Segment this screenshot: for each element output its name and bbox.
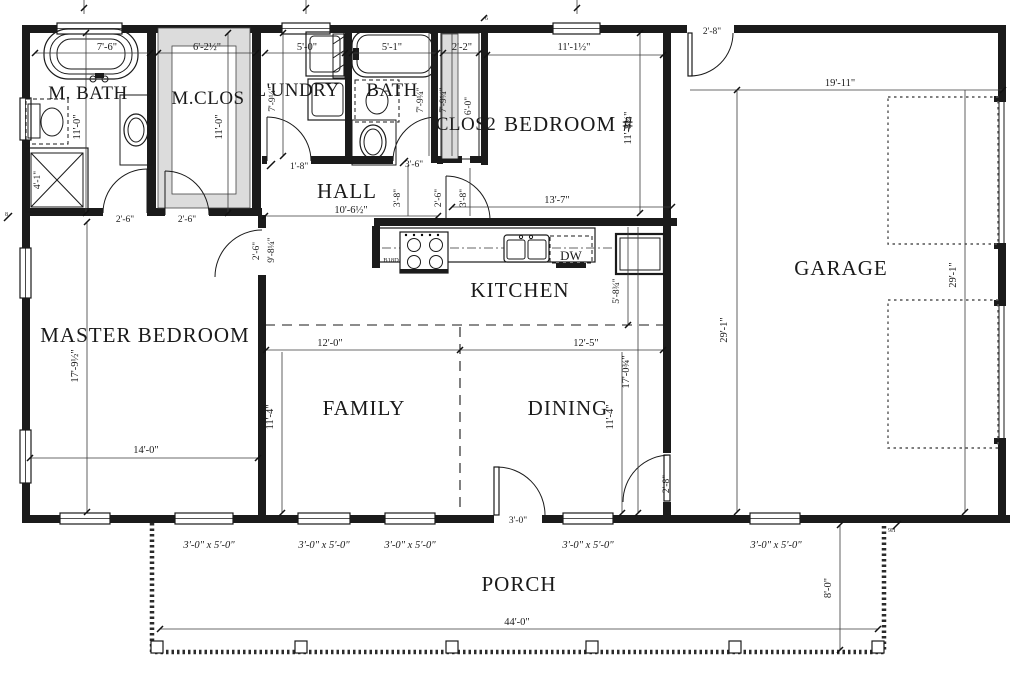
room-label-family: FAMILY bbox=[323, 396, 406, 420]
dim-clos2-length: 6'-0" bbox=[464, 97, 474, 115]
mark-bottom: 9H bbox=[888, 528, 896, 534]
dim-mbath-depth: 11'-0" bbox=[72, 114, 83, 139]
dim-family-depth: 11'-4" bbox=[265, 404, 276, 429]
dim-bath-tub: 5'-1" bbox=[382, 42, 402, 53]
mark-left: 8 bbox=[5, 212, 8, 218]
tub-icon bbox=[352, 31, 437, 77]
dim-kitchen-depth: 5'-8¾" bbox=[612, 278, 622, 304]
dim-hall-3-8-a: 3'-8" bbox=[393, 189, 403, 207]
master-bath-fixtures bbox=[26, 29, 152, 212]
dim-bedroom-depth: 11'-8¾" bbox=[623, 112, 634, 145]
cabinet-label: B18D bbox=[383, 257, 399, 264]
room-label-bedroom: BEDROOM # bbox=[504, 112, 634, 136]
dim-master-entry: 9'-8¼" bbox=[267, 237, 277, 263]
tub-icon bbox=[44, 29, 138, 79]
room-label-kitchen: KITCHEN bbox=[470, 278, 569, 302]
dim-shower: 4'-1" bbox=[33, 171, 43, 189]
room-label-clos2: CLOS2 bbox=[436, 114, 497, 135]
dim-porch-width: 44'-0" bbox=[504, 617, 529, 628]
dim-master-depth: 17'-9½" bbox=[70, 349, 81, 382]
dim-mbath-door: 2'-6" bbox=[116, 215, 134, 225]
dim-garage-depth-left: 29'-1" bbox=[719, 317, 730, 342]
dim-hall-width: 10'-6½" bbox=[334, 205, 367, 216]
window-labels: 3'-0" x 5'-0" 3'-0" x 5'-0" 3'-0" x 5'-0… bbox=[182, 540, 802, 551]
dim-clos2-width: 2'-2" bbox=[452, 42, 472, 53]
dim-dining-depth: 11'-4" bbox=[605, 404, 616, 429]
room-label-m-bath: M. BATH bbox=[48, 83, 128, 104]
dim-kitchen-top: 13'-7" bbox=[544, 195, 569, 206]
room-label-porch: PORCH bbox=[481, 572, 556, 596]
room-label-m-clos: M.CLOS bbox=[171, 88, 244, 109]
dim-hall-jog: 1'-8" bbox=[290, 162, 308, 172]
room-label-dining: DINING bbox=[528, 396, 609, 420]
dim-dining-full-depth: 17'-0¾" bbox=[621, 355, 632, 388]
dim-bedroom-width: 11'-1½" bbox=[558, 42, 591, 53]
dim-garage-entry-door: 2'-8" bbox=[703, 27, 721, 37]
dim-hall-2-6: 2'-6" bbox=[434, 189, 444, 207]
dim-dining-width: 12'-5" bbox=[573, 338, 598, 349]
dim-garage-width: 19'-11" bbox=[825, 78, 855, 89]
room-label-hall: HALL bbox=[317, 179, 377, 203]
dim-laundry-depth: 7'-9¼" bbox=[268, 86, 278, 112]
dim-mclos-door: 2'-6" bbox=[178, 215, 196, 225]
dim-tub: 7'-6" bbox=[97, 42, 117, 53]
dim-master-door: 2'-6" bbox=[252, 242, 262, 260]
room-label-master: MASTER BEDROOM bbox=[40, 323, 249, 347]
dim-clos2-depth: 7'-9¼" bbox=[439, 87, 449, 113]
dim-porch-depth: 8'-0" bbox=[823, 578, 834, 598]
window-size-label-4: 3'-0" x 5'-0" bbox=[561, 540, 614, 551]
window-size-label-1: 3'-0" x 5'-0" bbox=[182, 540, 235, 551]
floor-plan-page: M. BATH M.CLOS L'UNDRY BATH CLOS2 BEDROO… bbox=[0, 0, 1031, 673]
window-size-label-5: 3'-0" x 5'-0" bbox=[749, 540, 802, 551]
dim-bath-depth: 7'-9¼" bbox=[416, 87, 426, 113]
dim-garage-depth-right: 29'-1" bbox=[948, 262, 959, 287]
garage-doors bbox=[888, 96, 1006, 448]
wall-note: 2X6 WALL bbox=[346, 82, 353, 113]
room-label-bath: BATH bbox=[366, 80, 418, 101]
dim-porch-door: 3'-0" bbox=[509, 516, 527, 526]
kitchen-fixtures bbox=[378, 228, 664, 274]
dim-mclos-depth: 11'-0" bbox=[214, 114, 225, 139]
window-size-label-2: 3'-0" x 5'-0" bbox=[297, 540, 350, 551]
dim-hall-3-6: 3'-6" bbox=[405, 160, 423, 170]
floor-plan-drawing: M. BATH M.CLOS L'UNDRY BATH CLOS2 BEDROO… bbox=[0, 0, 1031, 673]
dim-laundry-width: 5'-0" bbox=[297, 42, 317, 53]
mark-top: 6 bbox=[485, 16, 488, 22]
window-size-label-3: 3'-0" x 5'-0" bbox=[383, 540, 436, 551]
dishwasher-label: DW bbox=[560, 248, 582, 263]
toilet-icon bbox=[26, 99, 68, 144]
room-label-garage: GARAGE bbox=[794, 256, 888, 280]
sink-icon bbox=[504, 235, 549, 262]
dim-mclos-width: 6'-2½" bbox=[193, 42, 221, 53]
refrigerator-icon bbox=[616, 234, 664, 274]
dim-dining-door: 2'-8" bbox=[662, 475, 672, 493]
dim-hall-3-8-b: 3'-8" bbox=[459, 189, 469, 207]
dim-master-width: 14'-0" bbox=[133, 445, 158, 456]
dim-family-width: 12'-0" bbox=[317, 338, 342, 349]
